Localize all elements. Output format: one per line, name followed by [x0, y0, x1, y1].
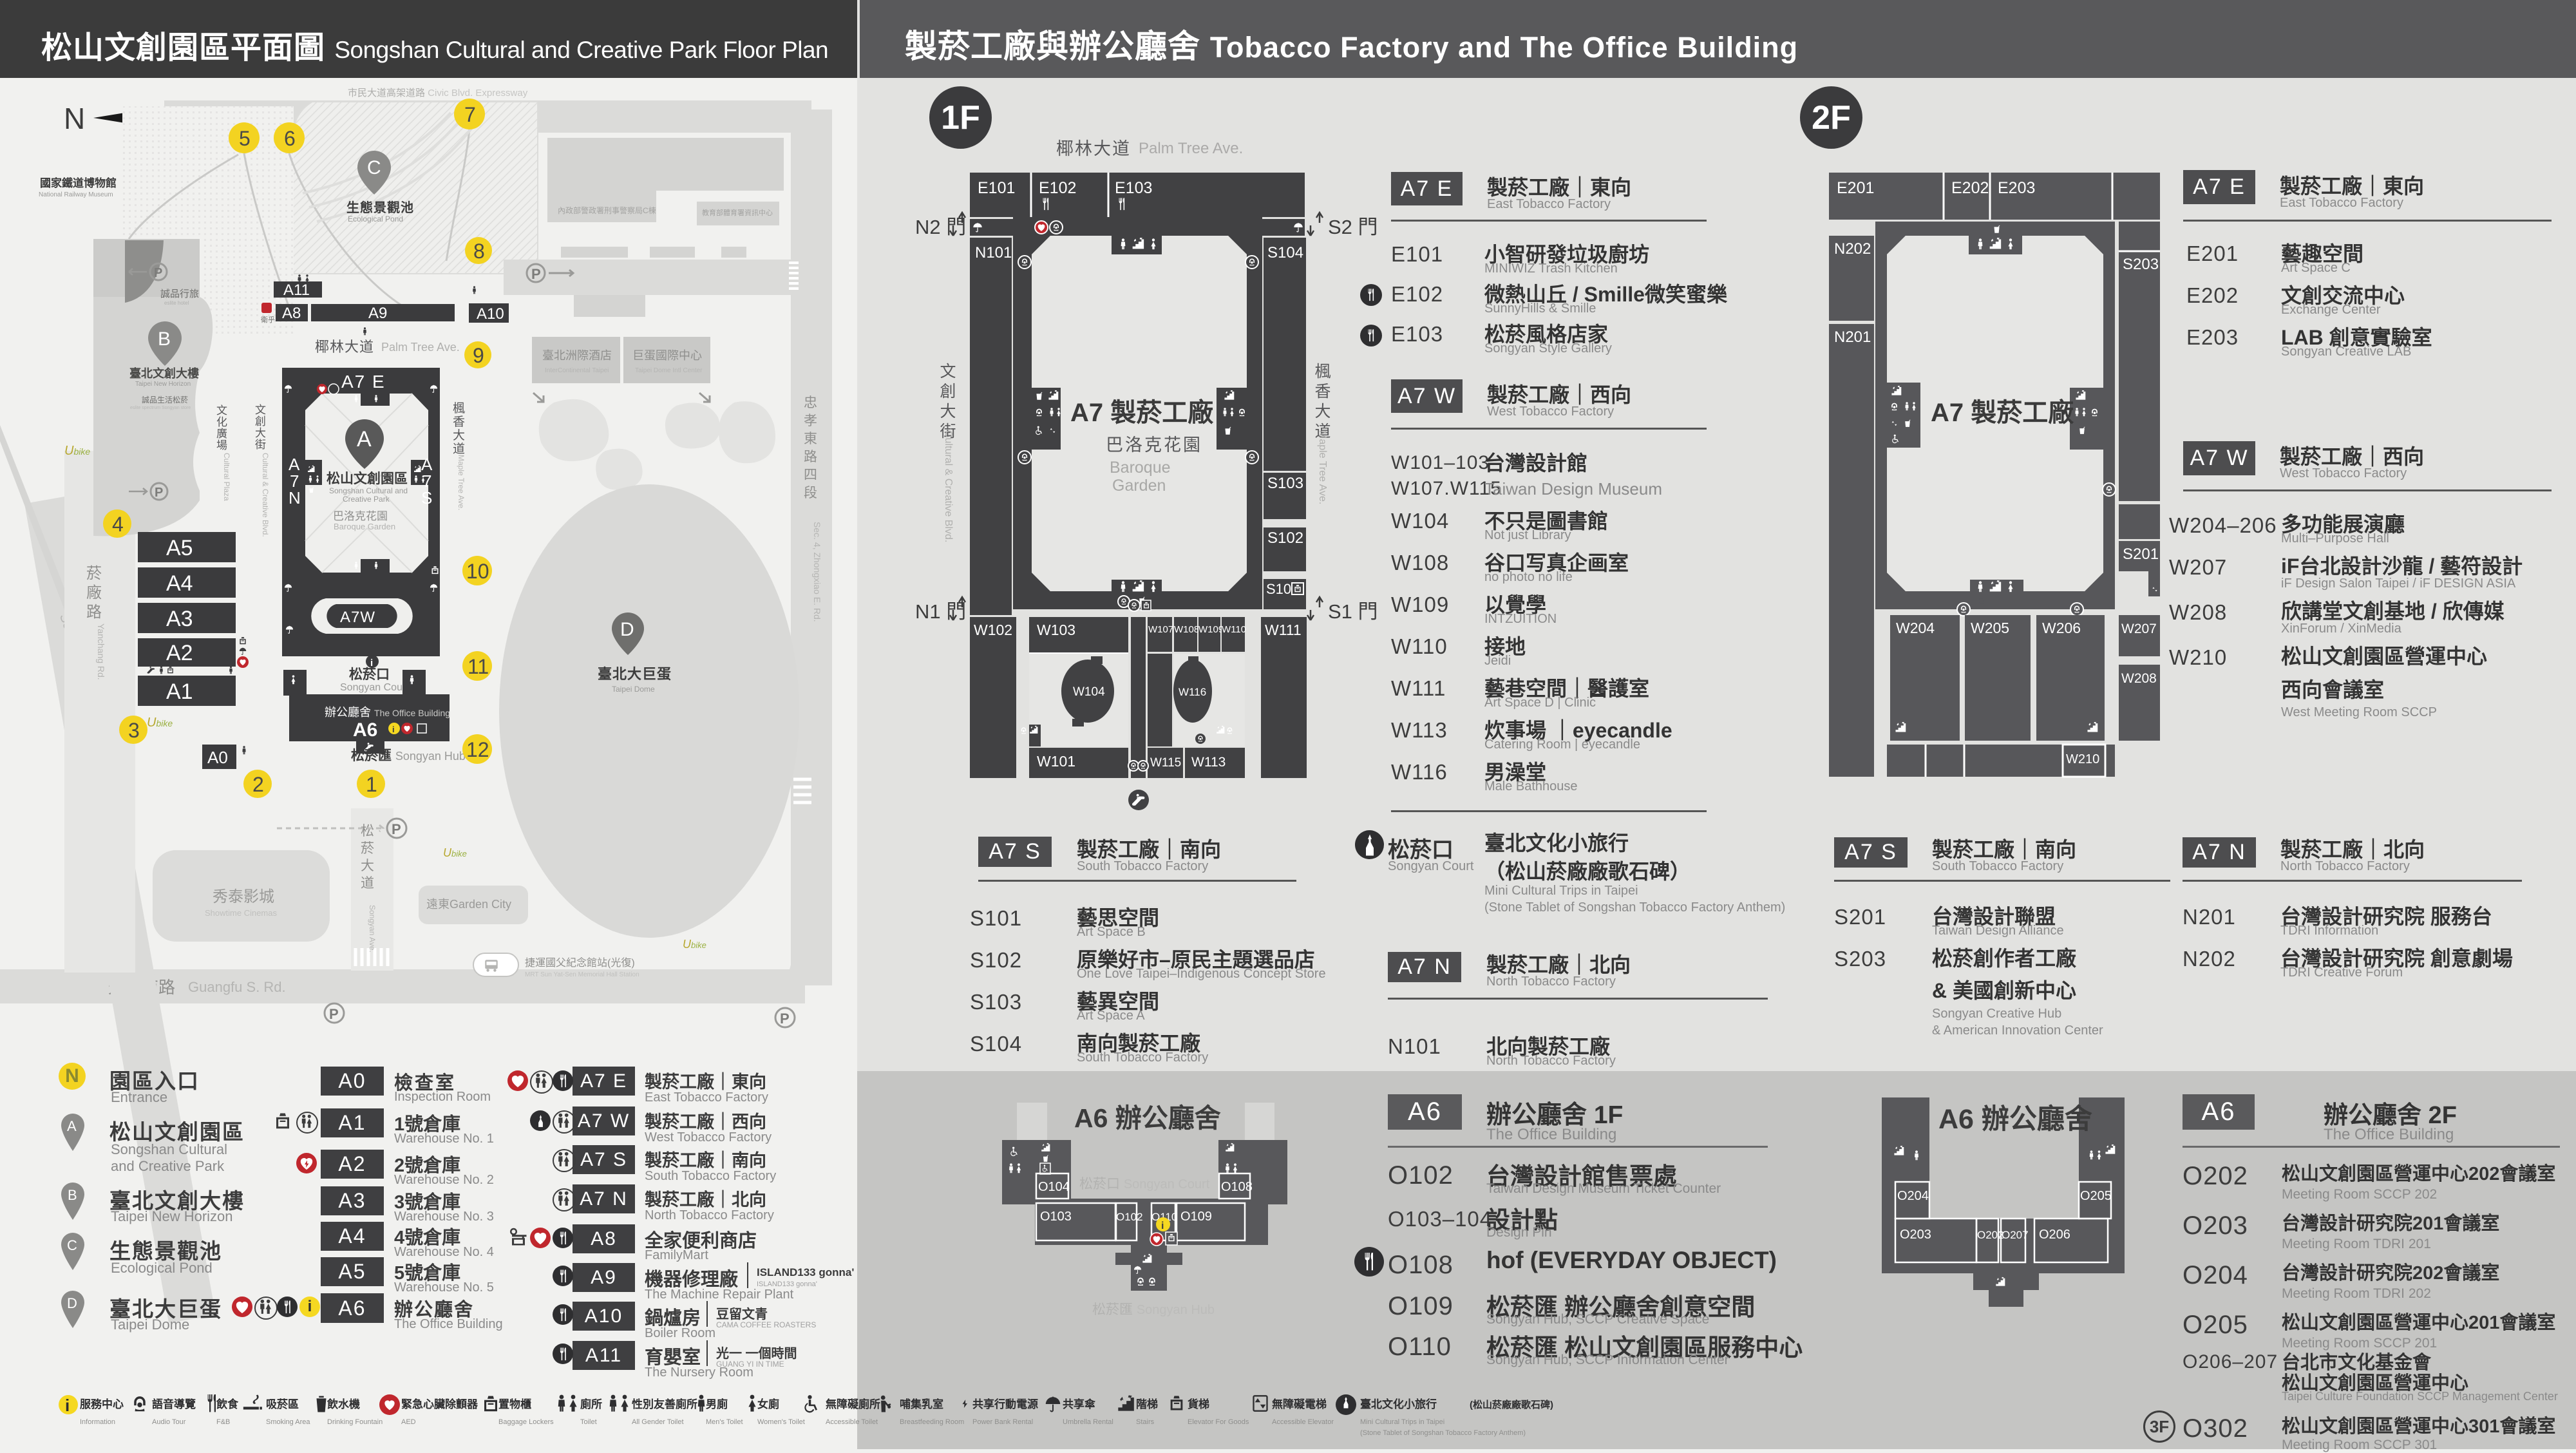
svg-text:A7N: A7N: [289, 455, 301, 508]
svg-text:菸廠路: 菸廠路: [86, 565, 102, 621]
svg-text:Power Bank Rental: Power Bank Rental: [972, 1418, 1033, 1426]
svg-text:Baroque: Baroque: [1110, 459, 1171, 477]
svg-text:E101: E101: [978, 179, 1015, 197]
svg-text:無障礙電梯: 無障礙電梯: [1272, 1398, 1327, 1410]
svg-text:Songshan Cultural and: Songshan Cultural and: [329, 486, 408, 495]
svg-text:B: B: [158, 328, 171, 350]
svg-text:Smoking Area: Smoking Area: [266, 1418, 310, 1426]
svg-text:A7 E: A7 E: [341, 372, 386, 392]
svg-text:松山文創園區: 松山文創園區: [327, 471, 408, 486]
svg-text:巴洛克花園: 巴洛克花園: [333, 510, 388, 522]
svg-text:B: B: [68, 1187, 77, 1203]
svg-text:D: D: [67, 1295, 77, 1311]
svg-text:椰林大道: 椰林大道: [315, 339, 374, 355]
svg-text:A7 製菸工廠: A7 製菸工廠: [1070, 398, 1213, 427]
svg-text:文創大街: 文創大街: [255, 404, 266, 451]
svg-text:臺北大巨蛋: 臺北大巨蛋: [598, 666, 672, 682]
svg-text:4: 4: [112, 513, 124, 536]
svg-text:S102: S102: [1267, 529, 1303, 547]
svg-text:O203: O203: [1900, 1228, 1931, 1242]
svg-text:N1 門: N1 門: [915, 600, 966, 623]
svg-text:誠品生活松菸: 誠品生活松菸: [142, 395, 188, 404]
svg-text:Sec. 4, Zhongxiao E. Rd.: Sec. 4, Zhongxiao E. Rd.: [812, 522, 822, 622]
svg-text:i: i: [1161, 1220, 1164, 1231]
svg-text:Baroque Garden: Baroque Garden: [334, 522, 395, 531]
svg-text:W108: W108: [1174, 624, 1199, 635]
svg-text:W107: W107: [1148, 624, 1173, 635]
svg-text:A8: A8: [282, 305, 301, 322]
svg-text:A: A: [67, 1118, 77, 1134]
svg-text:巴洛克花園: 巴洛克花園: [1106, 435, 1202, 455]
svg-text:All Gender Toilet: All Gender Toilet: [632, 1418, 684, 1426]
svg-text:A5: A5: [166, 536, 193, 560]
svg-text:無障礙廁所: 無障礙廁所: [826, 1398, 880, 1410]
svg-text:Women's Toilet: Women's Toilet: [757, 1418, 805, 1426]
svg-text:Drinking Fountain: Drinking Fountain: [327, 1418, 383, 1426]
svg-text:2: 2: [252, 773, 264, 796]
svg-text:服務中心: 服務中心: [80, 1398, 124, 1410]
svg-text:D: D: [620, 619, 634, 640]
svg-text:巨蛋國際中心: 巨蛋國際中心: [632, 349, 702, 362]
svg-text:女廁: 女廁: [757, 1398, 779, 1410]
svg-text:C: C: [67, 1237, 77, 1253]
svg-text:W111: W111: [1265, 622, 1302, 638]
svg-text:O205: O205: [2080, 1189, 2112, 1203]
svg-text:秀泰影城: 秀泰影城: [213, 888, 274, 906]
svg-text:男廁: 男廁: [706, 1398, 728, 1410]
svg-text:A0: A0: [207, 748, 228, 767]
svg-text:W115: W115: [1150, 756, 1181, 770]
svg-text:內政部警政署刑事警察局C棟: 內政部警政署刑事警察局C棟: [558, 205, 656, 215]
svg-text:S2 門: S2 門: [1328, 216, 1378, 238]
svg-text:P: P: [155, 486, 163, 500]
svg-text:飲食: 飲食: [216, 1398, 239, 1410]
svg-text:共享行動電源: 共享行動電源: [972, 1398, 1038, 1410]
svg-text:O206: O206: [2039, 1228, 2070, 1242]
svg-text:Mini Cultural Trips in Taipei: Mini Cultural Trips in Taipei: [1360, 1418, 1444, 1426]
svg-text:Umbrella Rental: Umbrella Rental: [1063, 1418, 1113, 1426]
svg-text:1: 1: [366, 773, 377, 796]
svg-text:Toilet: Toilet: [580, 1418, 597, 1426]
svg-text:飲水機: 飲水機: [327, 1398, 360, 1410]
svg-text:衛乎: 衛乎: [261, 316, 275, 324]
svg-text:A6 辦公廳舍: A6 辦公廳舍: [1938, 1104, 2092, 1135]
svg-text:Ubike: Ubike: [683, 938, 706, 951]
svg-text:W205: W205: [1971, 620, 2009, 636]
svg-text:O109: O109: [1180, 1210, 1212, 1224]
svg-text:S1 門: S1 門: [1328, 600, 1378, 623]
svg-text:S201: S201: [2123, 546, 2159, 563]
svg-text:P: P: [780, 1011, 790, 1027]
svg-text:W206: W206: [2042, 620, 2081, 636]
svg-text:教育部體育署資訊中心: 教育部體育署資訊中心: [702, 208, 773, 217]
svg-text:O207: O207: [2002, 1229, 2029, 1241]
svg-text:A9: A9: [368, 305, 387, 322]
svg-text:Men's Toilet: Men's Toilet: [706, 1418, 743, 1426]
svg-text:Taipei Dome Intl Center: Taipei Dome Intl Center: [635, 367, 703, 374]
svg-text:Yanchang Rd.: Yanchang Rd.: [96, 623, 106, 680]
svg-text:W204: W204: [1896, 620, 1935, 636]
svg-text:S203: S203: [2123, 256, 2159, 273]
svg-text:W102: W102: [974, 622, 1012, 638]
svg-text:6: 6: [284, 127, 296, 150]
svg-text:O104: O104: [1038, 1180, 1070, 1194]
svg-text:O202: O202: [1977, 1229, 2004, 1241]
svg-text:National Railway Museum: National Railway Museum: [39, 191, 113, 198]
svg-text:Songyan Court: Songyan Court: [340, 682, 409, 693]
svg-text:Guangfu S. Rd.: Guangfu S. Rd.: [188, 979, 286, 995]
svg-text:松菸匯 Songyan Hub: 松菸匯 Songyan Hub: [1092, 1302, 1215, 1317]
svg-text:階梯: 階梯: [1136, 1398, 1158, 1410]
svg-text:MRT Sun Yat-Sen Memorial Hall: MRT Sun Yat-Sen Memorial Hall Station: [525, 971, 639, 978]
svg-text:Palm Tree Ave.: Palm Tree Ave.: [1139, 140, 1243, 157]
svg-text:楓香大道: 楓香大道: [453, 401, 465, 456]
svg-text:性別友善廁所: 性別友善廁所: [632, 1398, 697, 1410]
svg-text:A3: A3: [166, 607, 193, 631]
svg-text:InterContinental Taipei: InterContinental Taipei: [545, 367, 609, 374]
svg-text:Taipei New Horizon: Taipei New Horizon: [135, 381, 191, 388]
svg-text:語音導覽: 語音導覽: [152, 1398, 196, 1410]
svg-text:W104: W104: [1073, 685, 1105, 699]
svg-text:i: i: [65, 1396, 70, 1415]
svg-text:eslite spectrum Songyan store: eslite spectrum Songyan store: [130, 406, 191, 410]
svg-text:松菸口 Songyan Court: 松菸口 Songyan Court: [1079, 1177, 1210, 1192]
svg-text:辦公廳舍 The Office Building: 辦公廳舍 The Office Building: [325, 706, 450, 719]
svg-text:生態景觀池: 生態景觀池: [346, 200, 414, 215]
svg-text:Songyan Ave.: Songyan Ave.: [368, 905, 377, 953]
svg-text:i: i: [392, 725, 395, 734]
svg-text:S103: S103: [1267, 475, 1303, 492]
svg-text:Garden: Garden: [1112, 477, 1166, 495]
svg-text:A4: A4: [166, 571, 193, 596]
svg-text:W103: W103: [1037, 622, 1075, 638]
svg-text:捷運國父紀念館站(光復): 捷運國父紀念館站(光復): [525, 956, 635, 969]
svg-text:(Stone Tablet of Songshan Toba: (Stone Tablet of Songshan Tobacco Factor…: [1360, 1429, 1526, 1437]
svg-text:Showtime Cinemas: Showtime Cinemas: [205, 908, 277, 918]
svg-text:Information: Information: [80, 1418, 115, 1426]
svg-text:N201: N201: [1834, 328, 1871, 346]
svg-text:A: A: [357, 427, 372, 451]
svg-text:椰林大道: 椰林大道: [1056, 139, 1131, 158]
svg-text:A7 製菸工廠: A7 製菸工廠: [1931, 398, 2074, 427]
svg-text:Ecological Pond: Ecological Pond: [348, 214, 403, 223]
svg-text:Stairs: Stairs: [1136, 1418, 1155, 1426]
svg-text:F&B: F&B: [216, 1418, 230, 1426]
svg-text:S104: S104: [1267, 244, 1303, 261]
svg-text:Ubike: Ubike: [64, 444, 90, 458]
svg-text:W207: W207: [2121, 622, 2157, 636]
svg-text:A6: A6: [353, 719, 377, 741]
svg-text:C: C: [367, 157, 381, 178]
svg-text:P: P: [154, 266, 162, 280]
svg-text:Baggage Lockers: Baggage Lockers: [498, 1418, 554, 1426]
svg-text:AED: AED: [401, 1418, 416, 1426]
svg-text:Breastfeeding Room: Breastfeeding Room: [900, 1418, 964, 1426]
svg-text:置物櫃: 置物櫃: [498, 1398, 531, 1410]
svg-text:共享傘: 共享傘: [1063, 1398, 1096, 1410]
svg-text:N2 門: N2 門: [915, 216, 966, 238]
svg-text:E102: E102: [1039, 179, 1076, 197]
svg-text:A10: A10: [477, 305, 504, 323]
svg-text:國家鐵道博物館: 國家鐵道博物館: [40, 176, 117, 189]
svg-text:O204: O204: [1897, 1189, 1929, 1203]
svg-text:N: N: [64, 102, 85, 135]
svg-text:W208: W208: [2121, 671, 2157, 686]
svg-text:W116: W116: [1179, 686, 1206, 698]
svg-text:Accessible Elevator: Accessible Elevator: [1272, 1418, 1334, 1426]
svg-text:11: 11: [468, 655, 489, 678]
svg-text:12: 12: [466, 738, 489, 761]
svg-text:松菸匯 Songyan Hub: 松菸匯 Songyan Hub: [351, 748, 466, 763]
svg-text:Taipei Dome: Taipei Dome: [612, 685, 655, 694]
svg-text:遠東Garden City: 遠東Garden City: [426, 898, 511, 911]
svg-text:Audio Tour: Audio Tour: [152, 1418, 186, 1426]
svg-text:P: P: [392, 821, 401, 837]
svg-text:7: 7: [464, 103, 476, 126]
svg-text:8: 8: [473, 240, 485, 263]
svg-text:W113: W113: [1191, 755, 1226, 770]
svg-text:10: 10: [466, 560, 489, 583]
svg-text:哺集乳室: 哺集乳室: [900, 1398, 943, 1410]
svg-text:P: P: [329, 1006, 339, 1022]
svg-text:貨梯: 貨梯: [1188, 1398, 1209, 1410]
svg-text:E202: E202: [1951, 179, 1989, 197]
svg-text:臺北文創大樓: 臺北文創大樓: [129, 366, 199, 380]
svg-text:Palm Tree Ave.: Palm Tree Ave.: [381, 341, 460, 354]
svg-text:Cultural & Creative Blvd.: Cultural & Creative Blvd.: [261, 453, 270, 537]
svg-text:A6 辦公廳舍: A6 辦公廳舍: [1074, 1103, 1221, 1133]
svg-text:松菸口: 松菸口: [349, 667, 390, 682]
svg-text:W210: W210: [2066, 752, 2099, 766]
svg-text:文化廣場: 文化廣場: [216, 404, 227, 451]
svg-text:W109: W109: [1198, 624, 1224, 635]
svg-text:臺北文化小旅行: 臺北文化小旅行: [1360, 1398, 1437, 1410]
svg-text:W101: W101: [1037, 753, 1075, 770]
svg-text:N202: N202: [1834, 240, 1871, 258]
svg-text:W110: W110: [1222, 624, 1246, 635]
svg-text:Ubike: Ubike: [147, 716, 173, 730]
svg-text:eslite hotel: eslite hotel: [164, 300, 189, 306]
svg-text:Accessible Toilet: Accessible Toilet: [826, 1418, 878, 1426]
svg-text:廁所: 廁所: [580, 1398, 602, 1410]
svg-text:5: 5: [239, 127, 251, 150]
svg-text:9: 9: [473, 344, 484, 367]
svg-text:A11: A11: [283, 281, 310, 299]
svg-text:O103: O103: [1040, 1210, 1072, 1224]
svg-text:市民大道高架道路 Civic Blvd. Expresswa: 市民大道高架道路 Civic Blvd. Expressway: [348, 88, 528, 99]
svg-text:緊急心臟除顫器: 緊急心臟除顫器: [401, 1398, 478, 1410]
svg-text:P: P: [531, 266, 541, 282]
svg-text:N101: N101: [975, 244, 1012, 261]
svg-text:3: 3: [128, 719, 140, 742]
svg-text:Elevator For Goods: Elevator For Goods: [1188, 1418, 1249, 1426]
svg-text:E203: E203: [1998, 179, 2035, 197]
svg-text:Creative Park: Creative Park: [343, 495, 390, 504]
svg-text:A2: A2: [166, 641, 193, 665]
svg-text:E201: E201: [1837, 179, 1874, 197]
svg-text:Maple Tree Ave.: Maple Tree Ave.: [457, 455, 466, 511]
svg-text:吸菸區: 吸菸區: [266, 1398, 299, 1410]
svg-text:O108: O108: [1221, 1180, 1253, 1194]
svg-text:A1: A1: [166, 679, 193, 704]
svg-text:誠品行旅: 誠品行旅: [160, 289, 199, 299]
svg-text:O102: O102: [1116, 1211, 1143, 1223]
svg-text:A7W: A7W: [340, 609, 375, 626]
svg-text:Ubike: Ubike: [443, 846, 467, 859]
svg-text:E103: E103: [1115, 179, 1152, 197]
svg-text:Cultural Plaza: Cultural Plaza: [222, 453, 231, 501]
svg-text:臺北洲際酒店: 臺北洲際酒店: [542, 349, 612, 362]
svg-text:(松山菸廠廠歌石碑): (松山菸廠廠歌石碑): [1470, 1399, 1553, 1410]
